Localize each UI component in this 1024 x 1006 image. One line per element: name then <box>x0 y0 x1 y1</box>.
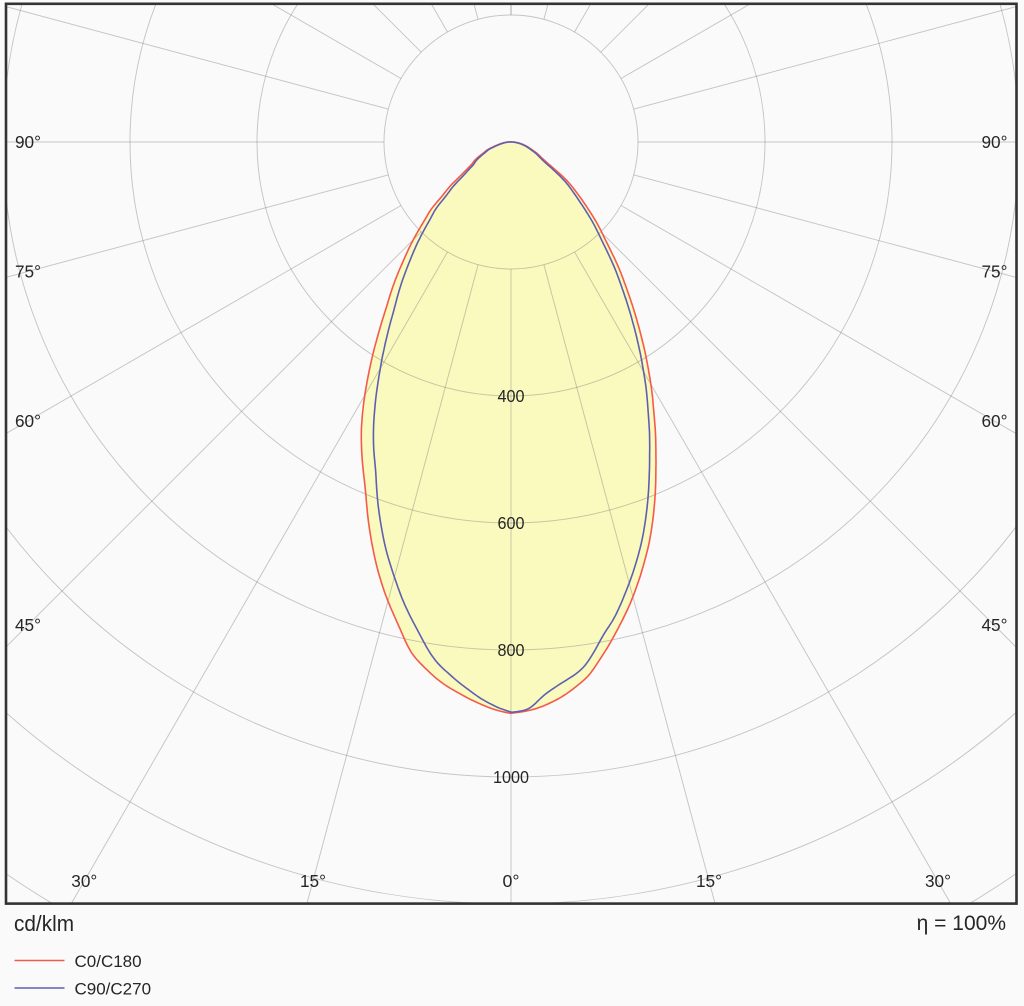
svg-text:0°: 0° <box>503 871 520 891</box>
svg-text:90°: 90° <box>15 132 41 152</box>
svg-text:30°: 30° <box>71 871 97 891</box>
svg-text:45°: 45° <box>15 615 41 635</box>
svg-text:η = 100%: η = 100% <box>917 912 1006 935</box>
svg-text:60°: 60° <box>15 411 41 431</box>
svg-text:75°: 75° <box>982 262 1008 282</box>
svg-text:60°: 60° <box>982 411 1008 431</box>
svg-text:C0/C180: C0/C180 <box>75 952 142 971</box>
svg-text:800: 800 <box>498 640 525 660</box>
svg-text:C90/C270: C90/C270 <box>75 980 152 999</box>
svg-text:45°: 45° <box>982 615 1008 635</box>
svg-text:cd/klm: cd/klm <box>14 911 74 936</box>
svg-text:75°: 75° <box>15 262 41 282</box>
svg-text:600: 600 <box>498 513 525 533</box>
svg-text:90°: 90° <box>982 132 1008 152</box>
svg-text:15°: 15° <box>300 871 326 891</box>
svg-text:30°: 30° <box>925 871 951 891</box>
svg-text:15°: 15° <box>696 871 722 891</box>
svg-text:400: 400 <box>498 386 525 406</box>
svg-text:1000: 1000 <box>493 767 529 787</box>
